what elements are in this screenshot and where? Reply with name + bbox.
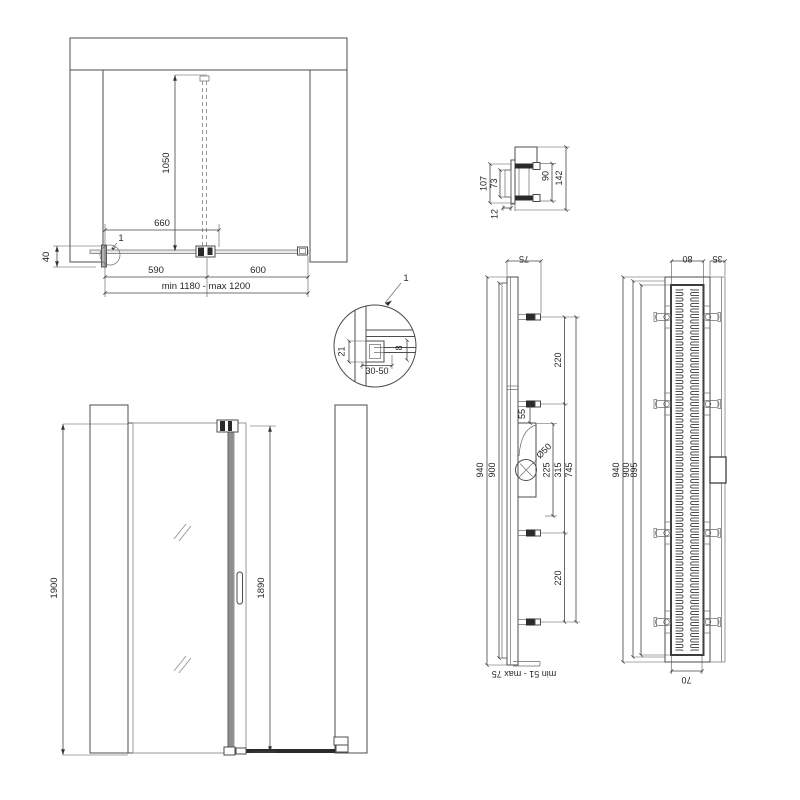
dim-label-660: 660 <box>154 218 170 229</box>
dim-label-8: 8 <box>394 345 404 350</box>
dim-label-142: 142 <box>554 170 564 185</box>
dim-label-1050: 1050 <box>161 152 172 173</box>
plan-back-wall <box>70 38 347 70</box>
dim-label-35: 35 <box>712 254 722 264</box>
front-fixed-glass <box>133 423 228 753</box>
front-pivot-profile <box>228 423 234 753</box>
detail-profile-body <box>366 341 384 362</box>
front-wall-bracket <box>334 737 348 745</box>
front-wall-profile <box>128 423 133 753</box>
dim-label-70: 70 <box>681 675 691 685</box>
channel-side-view: Ø50 min 51 - max 75 75 940 900 55 225 <box>475 254 580 679</box>
dim-label-side-900: 900 <box>487 462 497 477</box>
dim-label-225: 225 <box>542 462 552 477</box>
dim-label-1900: 1900 <box>49 577 60 598</box>
dim-label-21: 21 <box>337 346 347 356</box>
plan-left-wall <box>70 70 103 262</box>
channel-side-brackets <box>518 314 541 626</box>
dim-label-90: 90 <box>541 171 551 181</box>
plan-door-top-fitting <box>200 76 209 81</box>
dim-label-220-upper: 220 <box>553 352 563 367</box>
profile-detail-view: 21 30-50 8 1 <box>334 273 417 389</box>
dim-label-55: 55 <box>517 409 527 419</box>
dim-label-600: 600 <box>250 265 266 276</box>
dim-label-80: 80 <box>682 254 692 264</box>
front-left-pillar <box>90 405 128 753</box>
detail-callout-label: 1 <box>403 273 408 284</box>
dim-label-75: 75 <box>519 254 529 264</box>
channel-body-side <box>507 277 518 665</box>
dim-label-30-50: 30-50 <box>365 366 388 376</box>
technical-drawing-sheet: 1 660 590 600 min 1180 - max 1200 1050 <box>0 0 800 800</box>
dim-label-pipe-diameter: Ø50 <box>534 441 553 460</box>
door-handle <box>237 572 243 604</box>
dim-label-107: 107 <box>479 176 489 191</box>
dim-label-foot-range: min 51 - max 75 <box>492 669 557 679</box>
channel-outlet-box <box>710 457 726 483</box>
bracket-detail-view: 107 73 90 142 12 <box>479 147 571 219</box>
glass-hatch-marks <box>174 524 191 673</box>
dim-label-12: 12 <box>490 209 500 219</box>
dim-label-73: 73 <box>489 178 499 188</box>
front-view: 1900 1890 <box>49 405 367 755</box>
front-threshold <box>246 749 335 753</box>
dim-label-895: 895 <box>629 462 639 477</box>
dim-label-side-940: 940 <box>475 462 485 477</box>
bracket-clamp-upper <box>515 164 533 169</box>
dim-label-40: 40 <box>41 252 52 263</box>
plan-callout-label: 1 <box>118 233 123 244</box>
bracket-clamp-lower <box>515 196 533 201</box>
dim-label-top-940: 940 <box>611 462 621 477</box>
drain-grate-slats <box>676 289 700 651</box>
front-right-pillar <box>335 405 367 753</box>
dim-label-1890: 1890 <box>256 577 267 598</box>
plan-right-wall <box>310 70 347 262</box>
front-bottom-pivot <box>224 747 235 755</box>
channel-top-view: 80 35 940 900 895 70 <box>611 254 726 685</box>
dim-label-315: 315 <box>553 462 563 477</box>
dim-label-220-lower: 220 <box>553 570 563 585</box>
drawing-svg: 1 660 590 600 min 1180 - max 1200 1050 <box>0 0 800 800</box>
dim-label-590: 590 <box>148 265 164 276</box>
plan-view: 1 660 590 600 min 1180 - max 1200 1050 <box>41 38 347 297</box>
dim-label-total-width: min 1180 - max 1200 <box>162 281 251 292</box>
dim-label-745: 745 <box>564 462 574 477</box>
